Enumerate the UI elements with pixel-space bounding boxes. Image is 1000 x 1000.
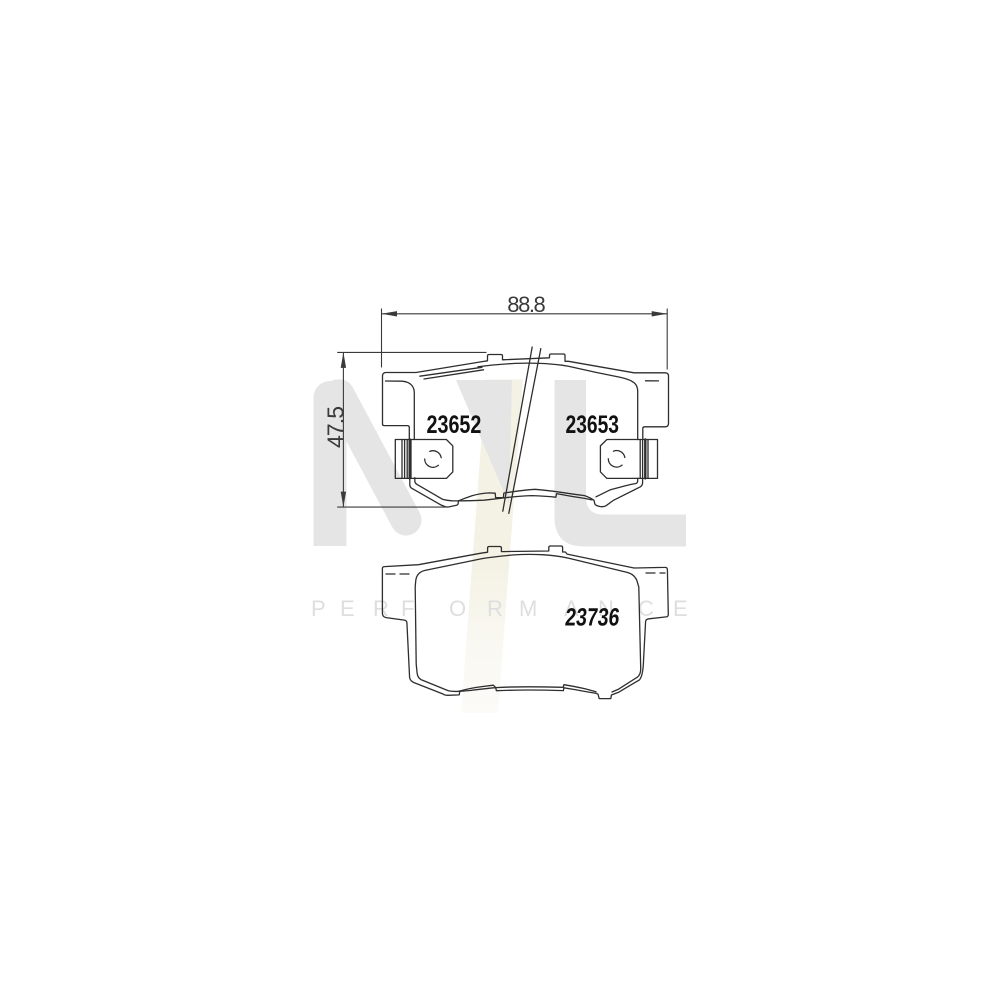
svg-text:E: E [340,596,355,621]
svg-text:F: F [401,596,414,621]
svg-text:E: E [673,596,688,621]
svg-text:23736: 23736 [564,603,621,631]
svg-text:23652: 23652 [427,411,482,439]
svg-text:23653: 23653 [566,410,620,438]
svg-text:47.5: 47.5 [323,406,349,448]
svg-text:R: R [487,596,503,621]
svg-text:88.8: 88.8 [507,292,546,317]
svg-text:O: O [449,596,466,621]
svg-text:P: P [311,596,326,621]
svg-text:M: M [519,596,537,621]
svg-text:C: C [638,596,654,621]
